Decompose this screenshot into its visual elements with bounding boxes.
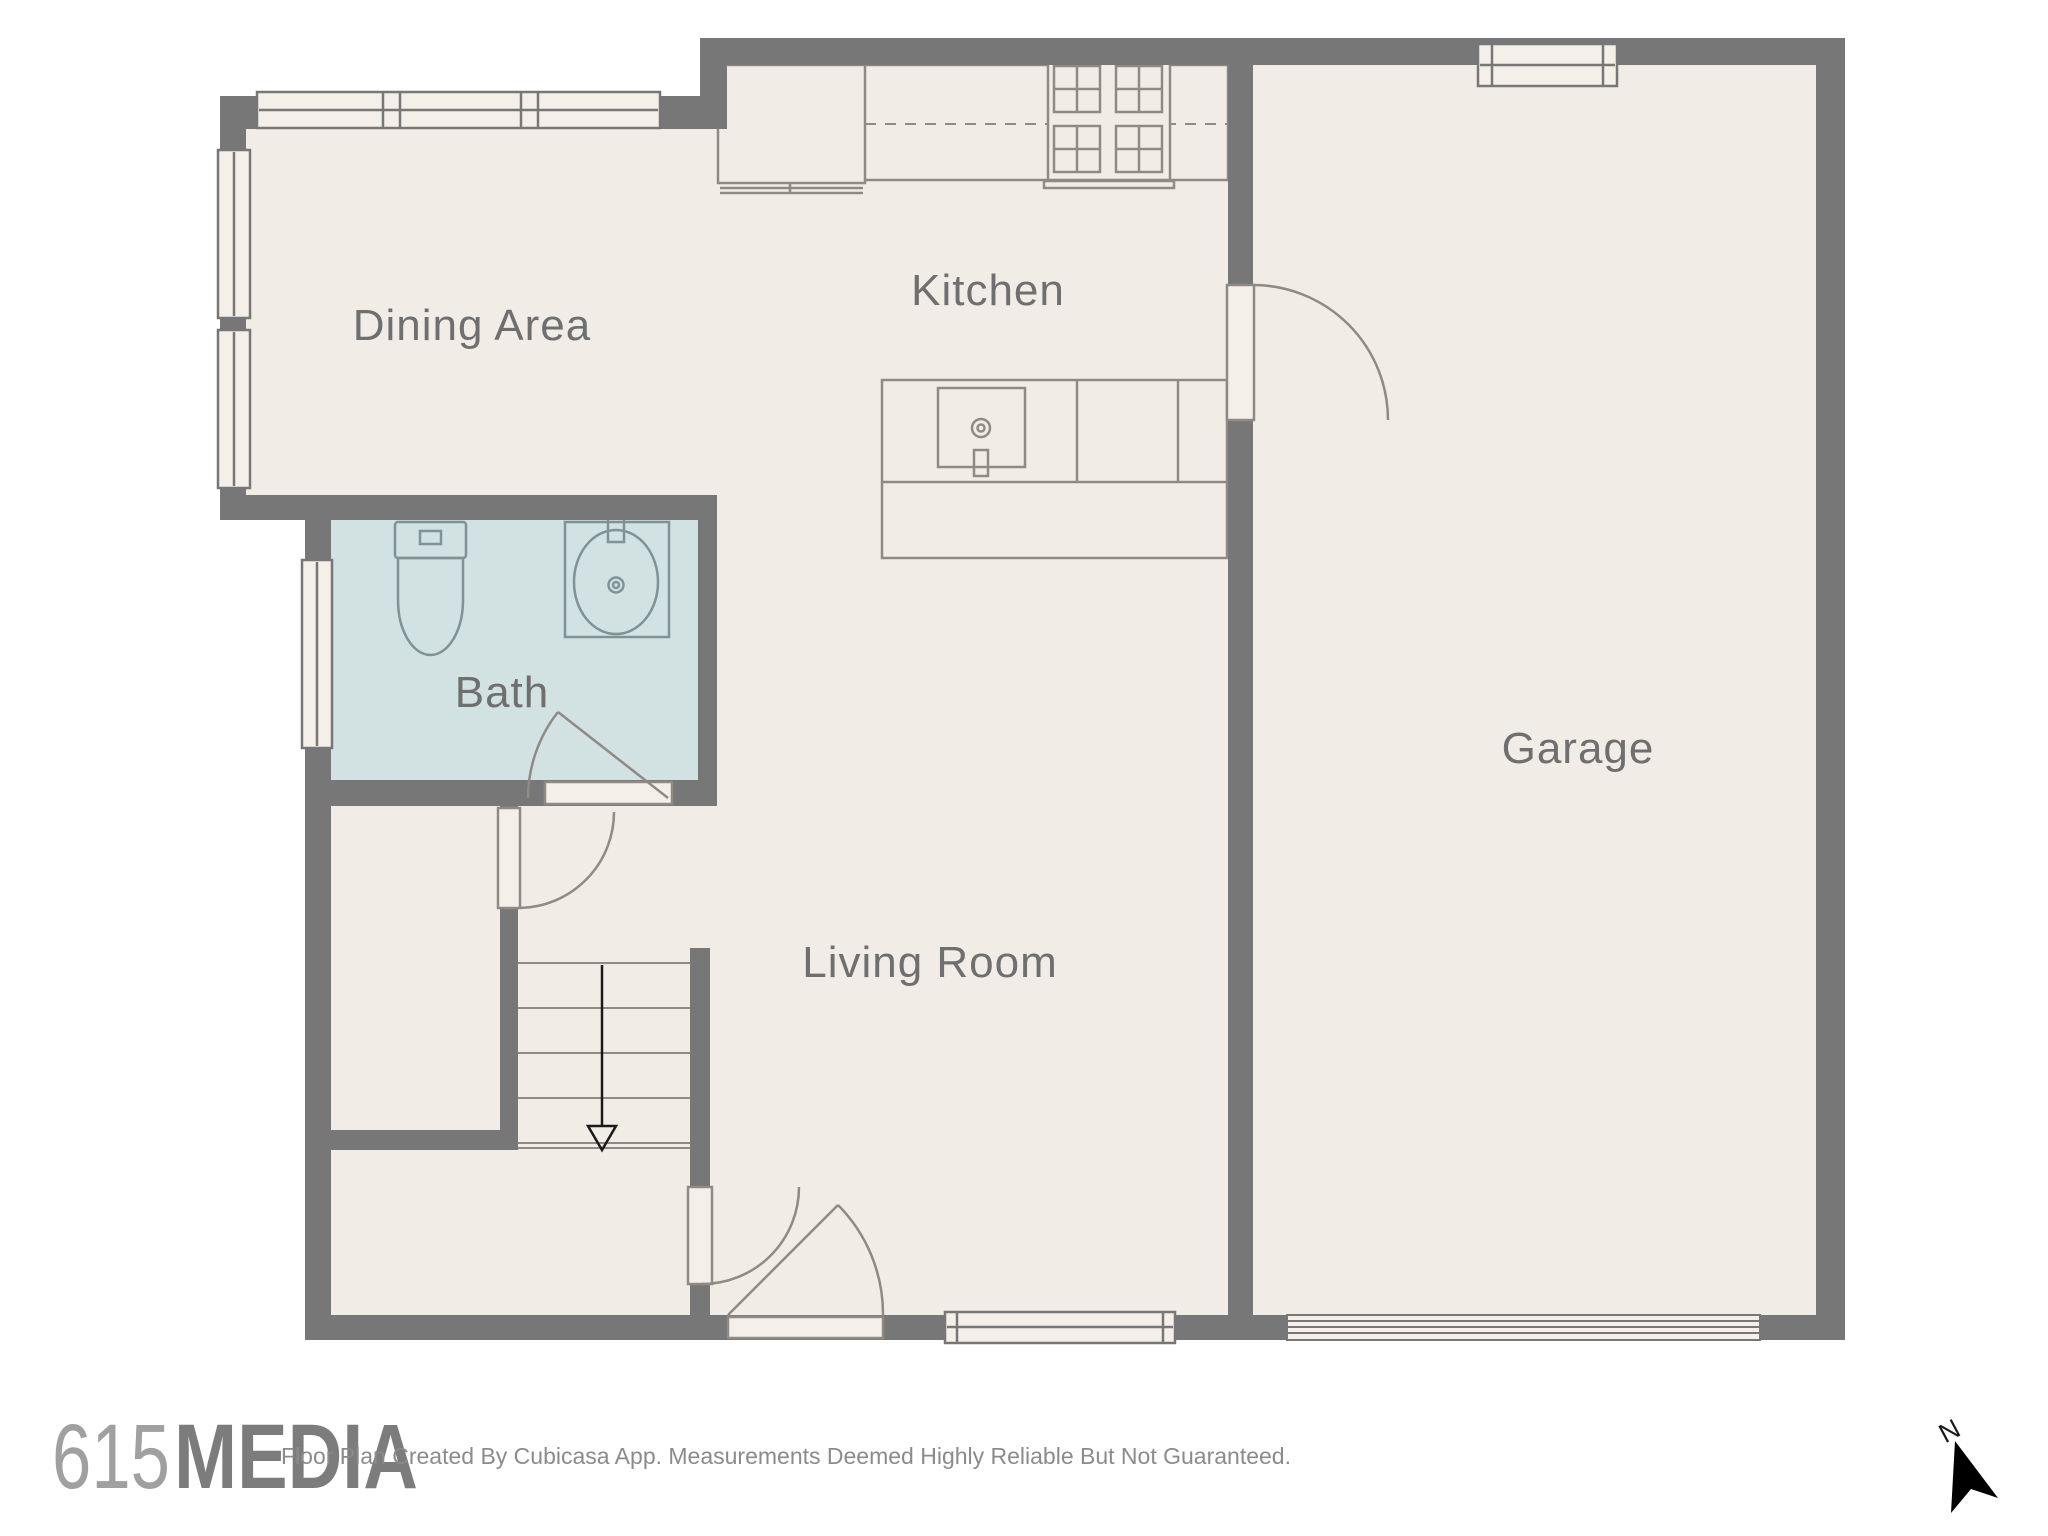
disclaimer-text: Floor Plan Created By Cubicasa App. Meas… xyxy=(281,1443,1291,1469)
wall xyxy=(700,65,727,129)
floor-plan-page: Dining Area Kitchen Bath Living Room Gar… xyxy=(0,0,2048,1536)
hall-foyer-floor xyxy=(331,806,717,1315)
wall xyxy=(700,38,1845,65)
refrigerator-icon xyxy=(718,65,865,193)
garage-floor xyxy=(1253,65,1816,1315)
living-room-label: Living Room xyxy=(802,938,1058,987)
kitchen-label: Kitchen xyxy=(911,266,1065,315)
wall xyxy=(1816,38,1845,1340)
bath-label: Bath xyxy=(455,668,550,717)
north-label: N xyxy=(1934,1413,1965,1449)
bath-floor xyxy=(331,520,698,780)
floor-plan: Dining Area Kitchen Bath Living Room Gar… xyxy=(0,0,2048,1536)
window xyxy=(257,92,660,128)
wall xyxy=(698,495,717,806)
kitchen-island xyxy=(882,380,1227,558)
window xyxy=(218,150,250,318)
window xyxy=(218,330,250,488)
north-arrow-icon xyxy=(1951,1441,1998,1513)
garage-label: Garage xyxy=(1502,724,1655,773)
wall xyxy=(1228,65,1253,1315)
wall xyxy=(331,1130,518,1150)
compass: N xyxy=(1934,1413,1998,1513)
wall xyxy=(220,495,717,520)
kitchen-living-floor xyxy=(717,65,1228,1315)
window xyxy=(1478,44,1617,86)
window xyxy=(302,560,332,748)
dining-area-label: Dining Area xyxy=(353,301,591,350)
window xyxy=(945,1312,1175,1343)
garage-door xyxy=(1287,1315,1760,1340)
stove-icon xyxy=(1044,58,1174,188)
logo-number: 615 xyxy=(52,1406,170,1508)
